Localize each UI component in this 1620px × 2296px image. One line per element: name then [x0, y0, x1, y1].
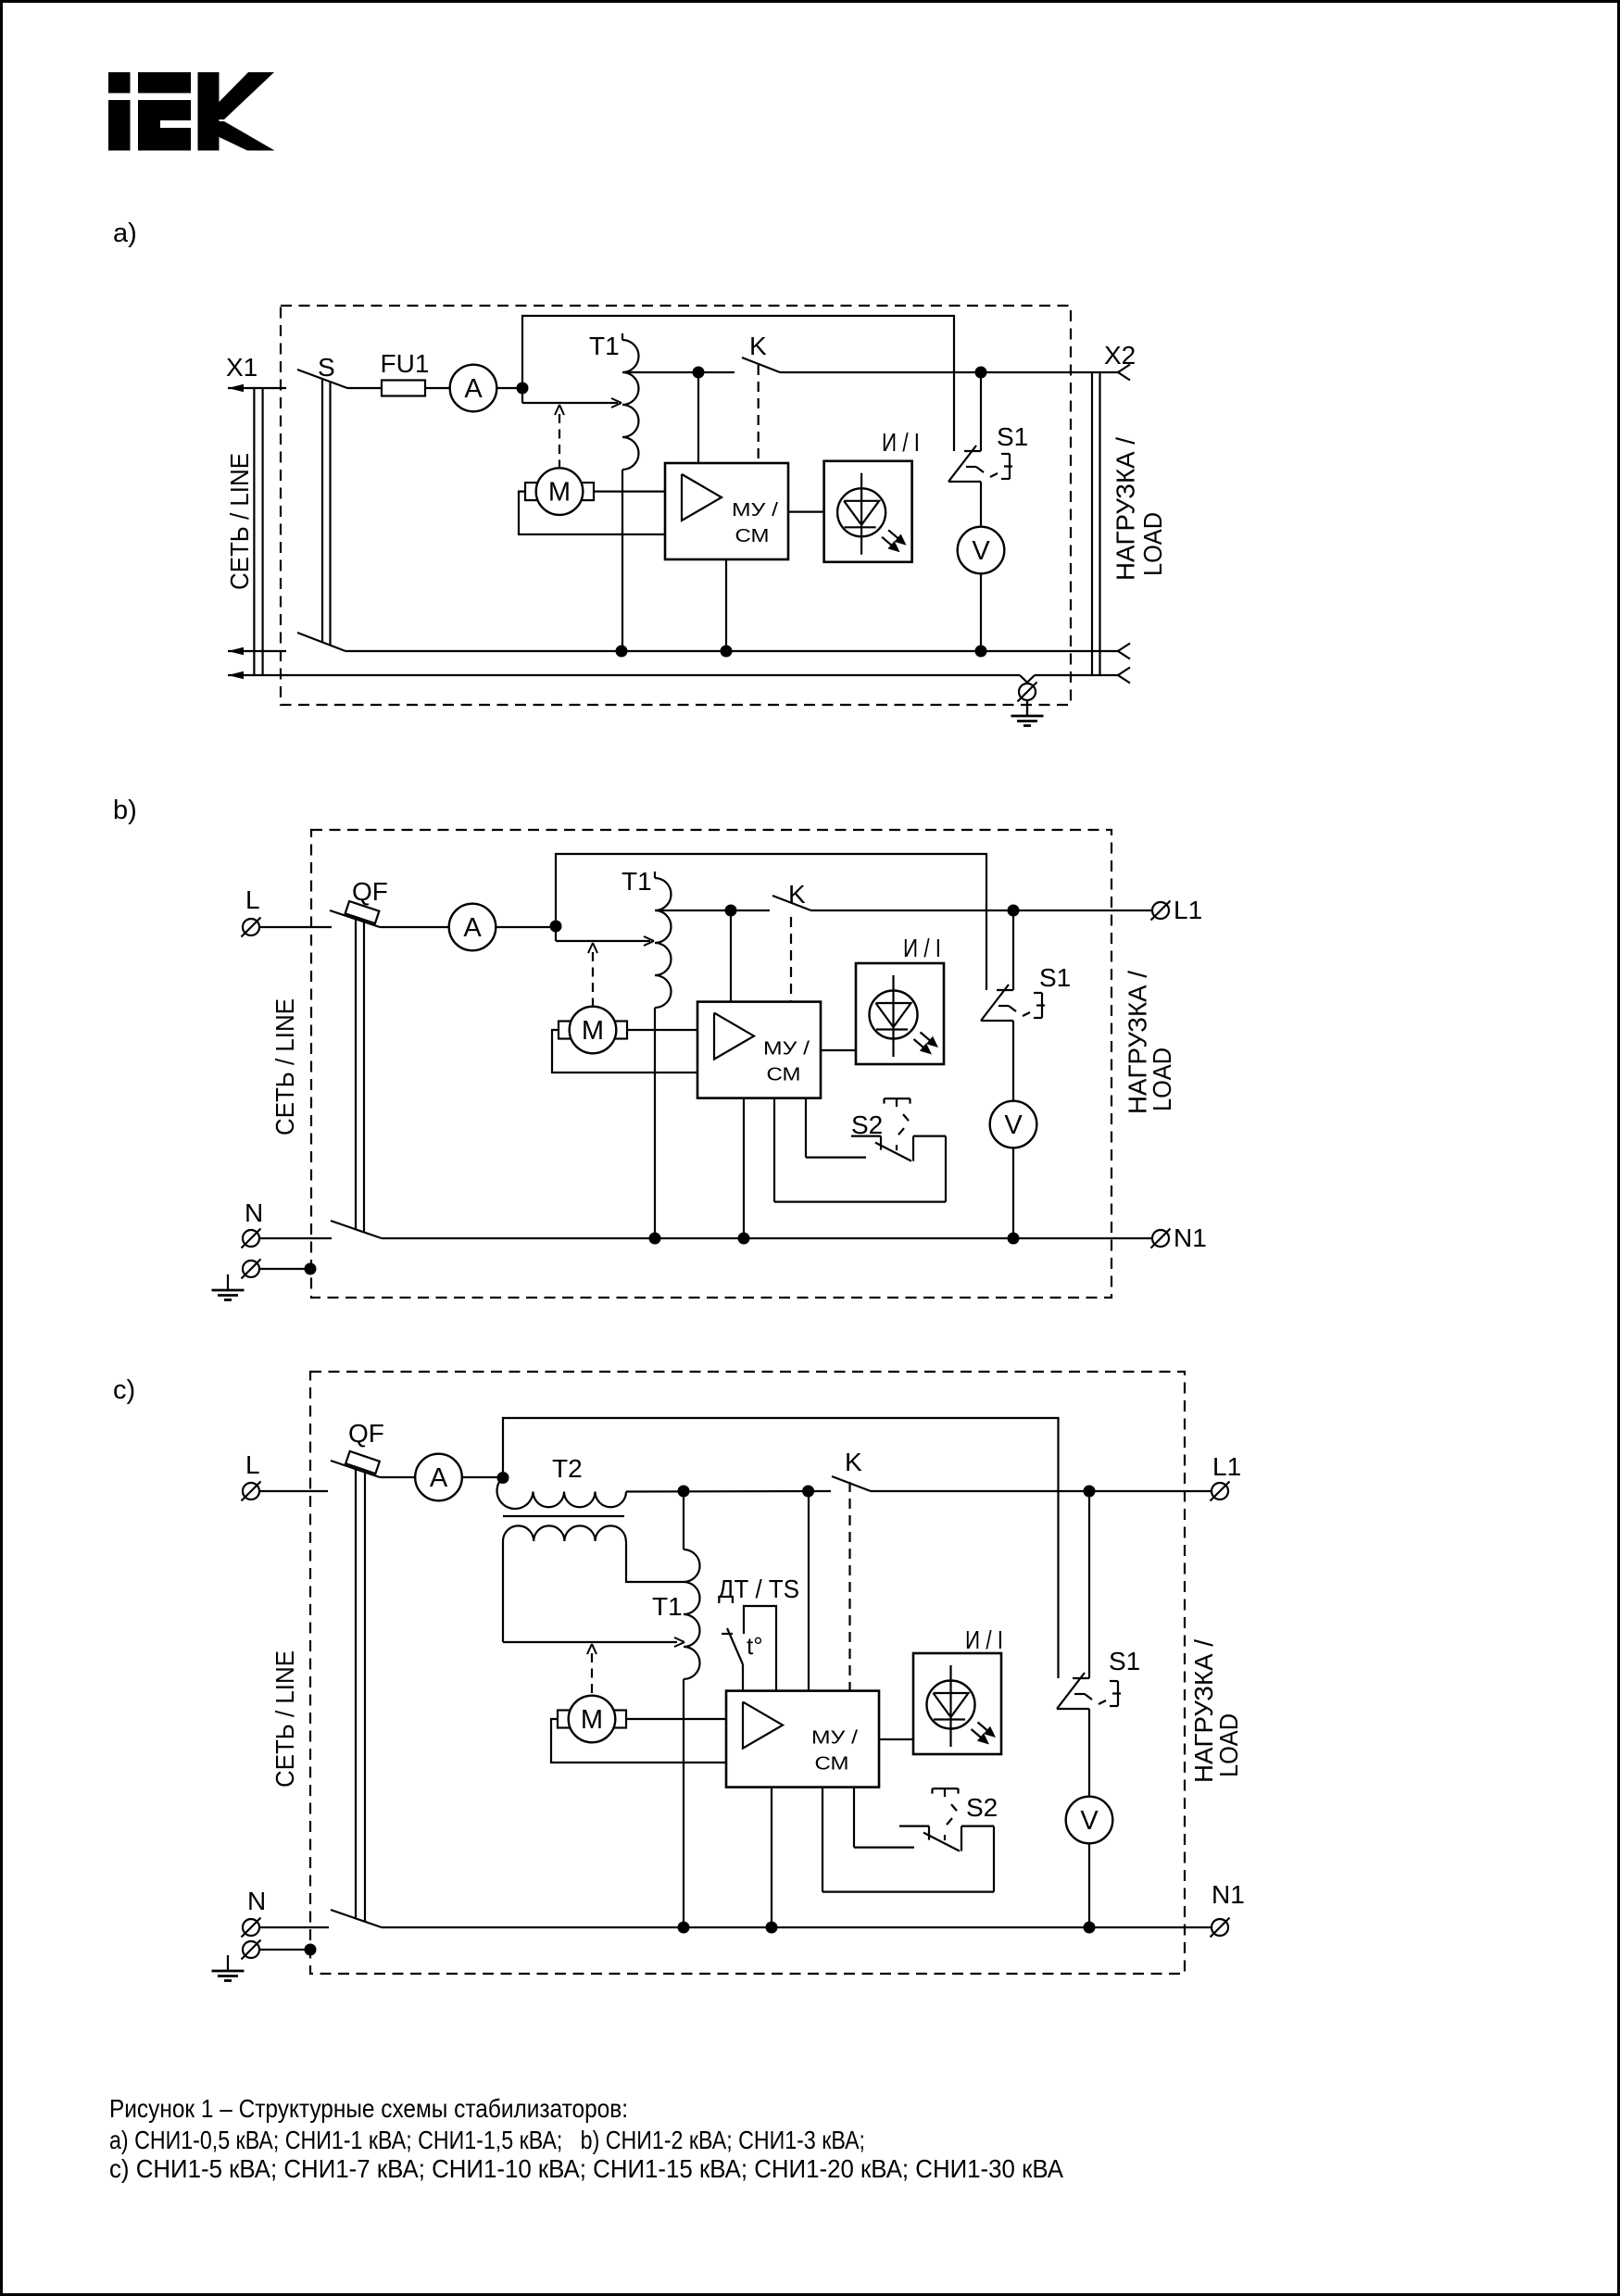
svg-text:V: V: [1080, 1806, 1099, 1836]
svg-text:N1: N1: [1212, 1880, 1245, 1909]
svg-text:И / I: И / I: [965, 1625, 1003, 1654]
svg-text:A: A: [464, 374, 483, 404]
svg-text:c): c): [113, 1375, 135, 1405]
svg-text:T1: T1: [622, 867, 652, 896]
svg-text:СМ: СМ: [767, 1064, 801, 1085]
svg-text:НАГРУЗКА /: НАГРУЗКА /: [1111, 437, 1140, 581]
svg-text:A: A: [430, 1463, 448, 1493]
svg-text:X1: X1: [226, 353, 257, 382]
svg-text:K: K: [749, 332, 767, 360]
svg-text:T1: T1: [652, 1592, 683, 1621]
svg-text:СЕТЬ / LINE: СЕТЬ / LINE: [270, 1650, 299, 1788]
svg-text:LOAD: LOAD: [1214, 1713, 1243, 1777]
svg-text:V: V: [1004, 1110, 1023, 1140]
svg-text:N: N: [245, 1198, 263, 1227]
svg-text:S2: S2: [851, 1110, 883, 1139]
svg-text:И / I: И / I: [903, 934, 941, 962]
svg-text:K: K: [845, 1448, 862, 1476]
svg-text:S1: S1: [1039, 963, 1071, 992]
svg-text:СЕТЬ / LINE: СЕТЬ / LINE: [270, 998, 299, 1135]
svg-text:ДТ / TS: ДТ / TS: [718, 1575, 799, 1603]
svg-text:LOAD: LOAD: [1138, 512, 1167, 576]
svg-text:S1: S1: [997, 422, 1028, 451]
svg-text:T1: T1: [589, 332, 620, 360]
svg-text:МУ /: МУ /: [732, 499, 778, 521]
svg-text:M: M: [582, 1016, 604, 1046]
svg-text:a): a): [113, 219, 137, 248]
svg-text:t°: t°: [747, 1632, 763, 1660]
svg-text:FU1: FU1: [381, 349, 430, 378]
svg-text:S2: S2: [966, 1793, 998, 1822]
svg-text:СМ: СМ: [735, 525, 770, 546]
svg-text:L: L: [245, 885, 260, 914]
svg-text:QF: QF: [352, 877, 388, 906]
svg-text:L1: L1: [1212, 1452, 1241, 1481]
svg-text:S1: S1: [1109, 1647, 1140, 1675]
svg-text:QF: QF: [348, 1419, 384, 1448]
svg-text:T2: T2: [552, 1454, 583, 1483]
svg-text:Рисунок 1 – Структурные схемы: Рисунок 1 – Структурные схемы стабилизат…: [109, 2094, 628, 2123]
svg-text:МУ /: МУ /: [763, 1038, 810, 1060]
svg-text:L: L: [245, 1450, 260, 1479]
svg-text:A: A: [463, 913, 482, 943]
svg-text:M: M: [581, 1705, 603, 1735]
svg-text:X2: X2: [1104, 341, 1136, 370]
svg-text:СМ: СМ: [815, 1753, 849, 1775]
svg-text:МУ /: МУ /: [811, 1727, 858, 1749]
svg-text:И / I: И / I: [882, 428, 920, 457]
svg-text:LOAD: LOAD: [1148, 1048, 1176, 1111]
svg-text:M: M: [548, 478, 571, 508]
svg-text:СЕТЬ / LINE: СЕТЬ / LINE: [225, 453, 254, 590]
svg-text:N: N: [247, 1887, 266, 1915]
svg-text:N1: N1: [1174, 1223, 1207, 1252]
svg-text:V: V: [972, 536, 990, 566]
svg-text:L1: L1: [1174, 896, 1202, 924]
svg-text:c) СНИ1-5 кВА; СНИ1-7 кВА; СНИ: c) СНИ1-5 кВА; СНИ1-7 кВА; СНИ1-10 кВА; …: [109, 2154, 1064, 2183]
svg-text:a) СНИ1-0,5 кВА; СНИ1-1 кВА; С: a) СНИ1-0,5 кВА; СНИ1-1 кВА; СНИ1-1,5 кВ…: [109, 2126, 865, 2154]
svg-text:b): b): [113, 796, 137, 825]
